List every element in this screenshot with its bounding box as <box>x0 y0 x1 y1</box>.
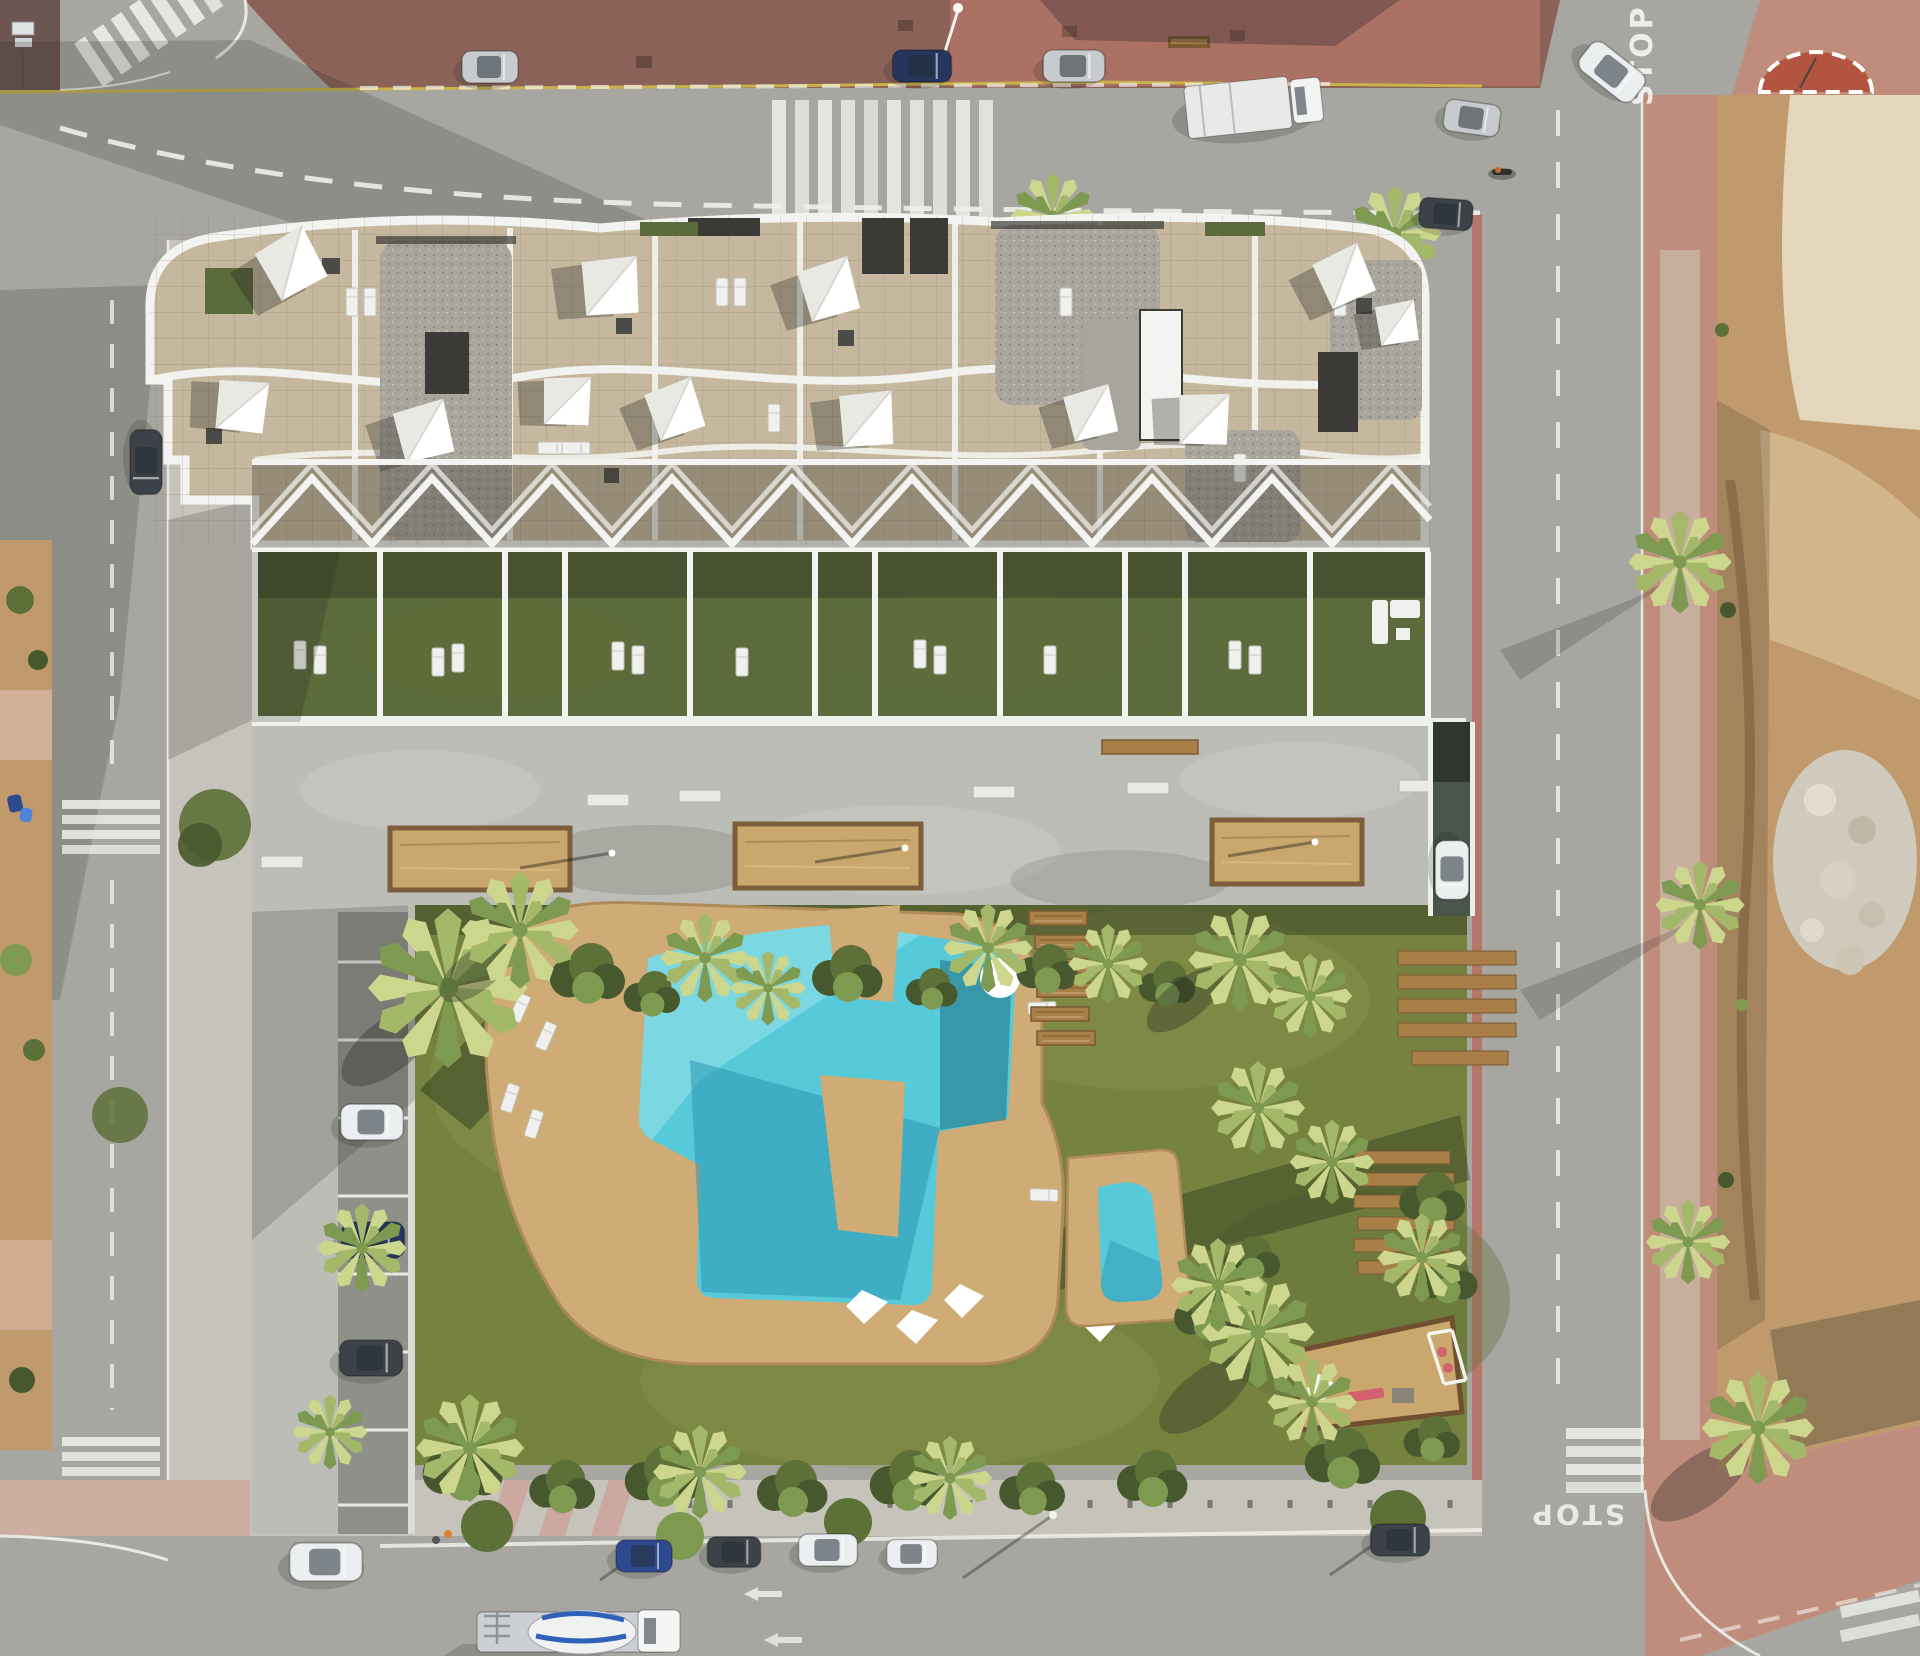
pedestrian <box>444 1530 452 1538</box>
parked-car-navy <box>883 50 952 89</box>
parked-car-dark <box>699 1537 762 1574</box>
parked-car-blue <box>607 1540 673 1579</box>
aerial-render-image: STOP STOP <box>0 0 1920 1656</box>
parked-car-white <box>331 1104 405 1148</box>
parked-car-white <box>879 1540 938 1575</box>
pergola-band <box>252 462 1430 553</box>
gym-box <box>1392 1388 1414 1403</box>
parked-car-silver <box>453 51 519 90</box>
promenade-deck <box>252 718 1466 914</box>
deck-bench <box>679 790 721 802</box>
pedestrian <box>432 1536 440 1544</box>
stop-marking-bottom: STOP <box>1529 1498 1625 1531</box>
parked-pickup-white <box>789 1534 858 1573</box>
parked-car-dark <box>1361 1524 1430 1563</box>
car-on-ramp <box>1428 831 1469 900</box>
parked-van-white <box>278 1543 364 1590</box>
parked-car-silver <box>1033 50 1106 89</box>
garden-terraces <box>252 552 1430 725</box>
garage-ramp <box>1428 722 1475 916</box>
deck-bench <box>587 794 629 806</box>
car-dark-leftroad <box>123 419 162 495</box>
parked-car-dark <box>330 1340 404 1384</box>
deck-bench <box>261 856 303 868</box>
deck-bench <box>1127 782 1169 794</box>
vacant-dirt-lot <box>1714 95 1920 1470</box>
sand-court <box>1212 820 1362 884</box>
sand-court <box>735 824 921 888</box>
deck-bench <box>973 786 1015 798</box>
small-pool <box>1066 1150 1190 1326</box>
